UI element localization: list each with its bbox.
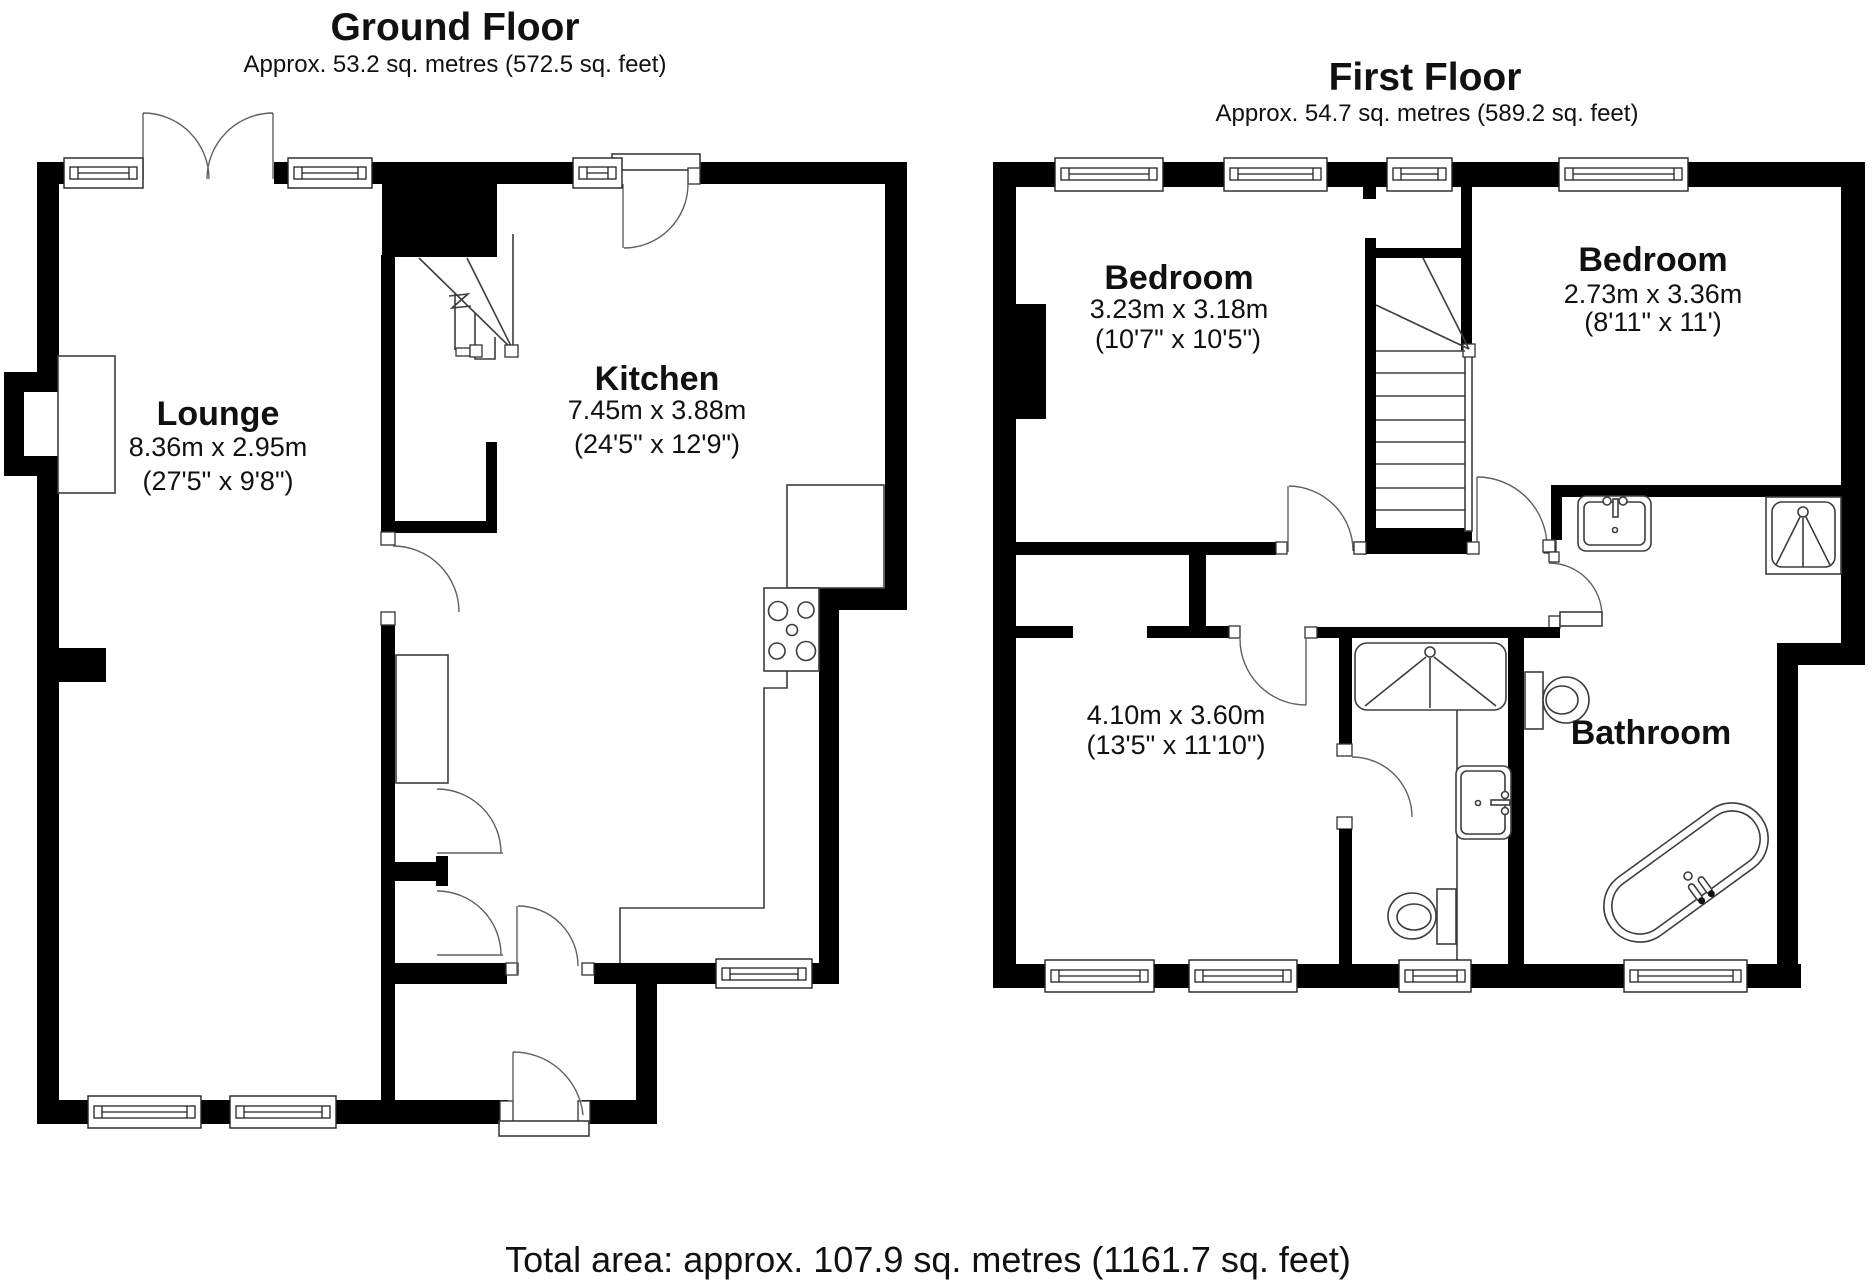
svg-text:Approx. 54.7 sq. metres (589.2: Approx. 54.7 sq. metres (589.2 sq. feet)	[1216, 100, 1639, 127]
svg-text:Approx. 53.2 sq. metres (572.5: Approx. 53.2 sq. metres (572.5 sq. feet)	[244, 51, 667, 78]
svg-text:(24'5" x 12'9"): (24'5" x 12'9")	[574, 429, 740, 459]
svg-text:Total area: approx. 107.9 sq.: Total area: approx. 107.9 sq. metres (11…	[505, 1239, 1351, 1280]
svg-text:4.10m x 3.60m: 4.10m x 3.60m	[1087, 700, 1266, 730]
svg-text:(10'7" x 10'5"): (10'7" x 10'5")	[1095, 324, 1261, 354]
svg-text:First Floor: First Floor	[1329, 56, 1522, 99]
svg-text:8.36m x 2.95m: 8.36m x 2.95m	[129, 432, 308, 462]
svg-text:2.73m x 3.36m: 2.73m x 3.36m	[1564, 279, 1743, 309]
svg-text:(8'11" x 11'): (8'11" x 11')	[1584, 307, 1721, 337]
svg-text:Lounge: Lounge	[157, 395, 280, 433]
svg-text:Bedroom: Bedroom	[1578, 241, 1727, 279]
svg-text:(27'5" x 9'8"): (27'5" x 9'8")	[142, 466, 293, 496]
svg-text:(13'5" x 11'10"): (13'5" x 11'10")	[1086, 730, 1265, 760]
svg-text:3.23m x 3.18m: 3.23m x 3.18m	[1090, 294, 1269, 324]
svg-text:Bedroom: Bedroom	[1104, 259, 1253, 297]
svg-text:7.45m x 3.88m: 7.45m x 3.88m	[568, 395, 747, 425]
svg-text:Bathroom: Bathroom	[1571, 714, 1732, 752]
svg-text:Ground Floor: Ground Floor	[330, 6, 579, 49]
svg-text:Kitchen: Kitchen	[595, 360, 720, 398]
